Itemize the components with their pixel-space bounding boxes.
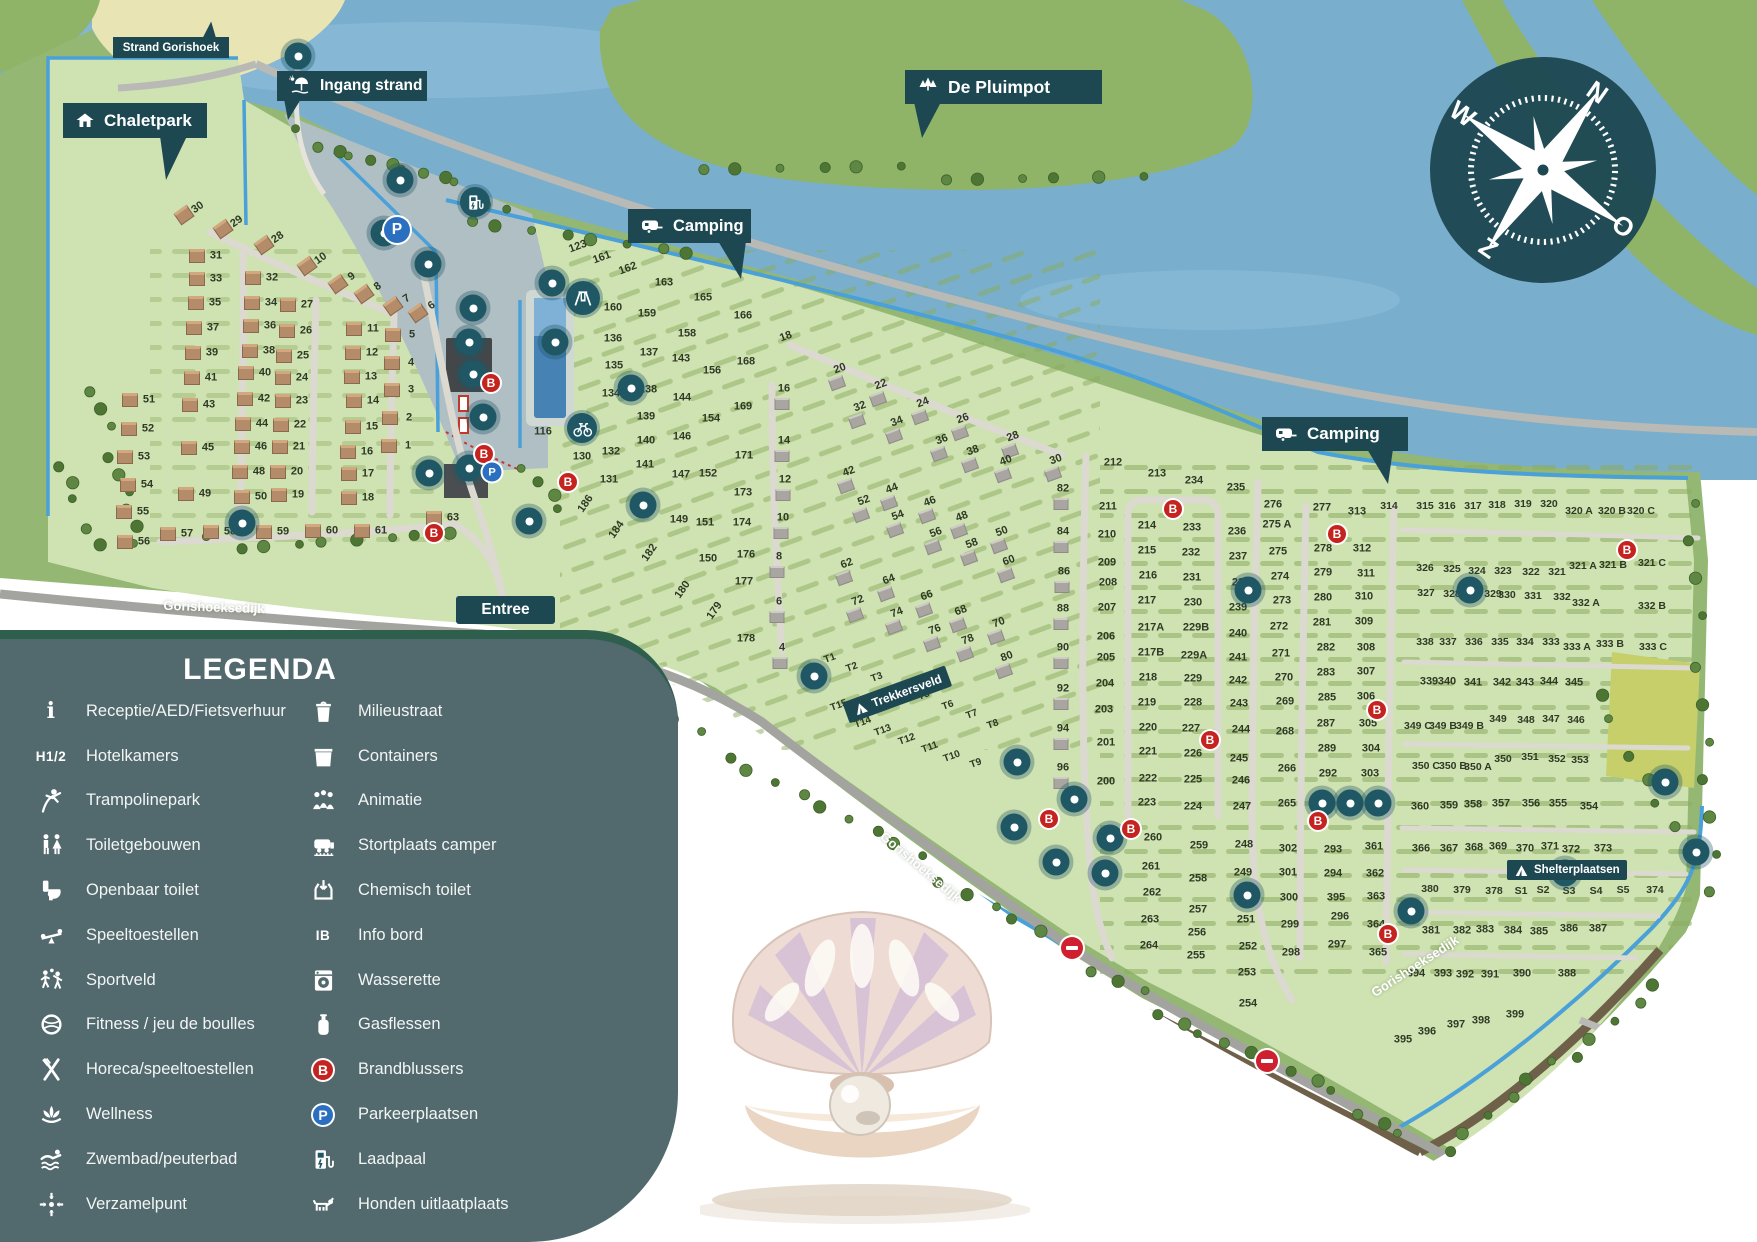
plot-number: 24 <box>296 373 308 384</box>
plot-number: 21 <box>293 442 305 453</box>
plot-number: 149 <box>670 515 688 526</box>
plot-number: 255 <box>1187 951 1205 962</box>
plot-number: 292 <box>1319 769 1337 780</box>
plot-number: 221 <box>1139 747 1157 758</box>
plot-number: 171 <box>735 451 753 462</box>
plot-number: 257 <box>1189 905 1207 916</box>
plot-number: 372 <box>1562 845 1580 856</box>
plot-number: 340 <box>1438 677 1456 688</box>
chalet-building <box>235 417 251 431</box>
plot-number: 156 <box>703 366 721 377</box>
plot-number: 217A <box>1138 623 1164 634</box>
plot-number: 383 <box>1476 925 1494 936</box>
plot-number: 298 <box>1282 948 1300 959</box>
chalet-building <box>203 525 219 539</box>
plot-number: 207 <box>1098 603 1116 614</box>
public-toilet-icon <box>28 877 74 904</box>
plot-number: 25 <box>297 351 309 362</box>
plot-number: 94 <box>1057 724 1069 735</box>
plot-number: 140 <box>637 436 655 447</box>
plot-number: 307 <box>1357 667 1375 678</box>
plot-number: 49 <box>199 489 211 500</box>
plot-number: 217 <box>1138 596 1156 607</box>
chalet-building <box>189 249 205 263</box>
plot-number: 23 <box>296 396 308 407</box>
plot-number: 236 <box>1228 527 1246 538</box>
plot-number: 163 <box>655 278 673 289</box>
plot-number: 139 <box>637 412 655 423</box>
chalet-building <box>181 441 197 455</box>
plot-number: 154 <box>702 414 720 425</box>
plot-number: 247 <box>1233 802 1251 813</box>
plot-number: 229B <box>1183 623 1209 634</box>
van-building <box>1054 738 1069 750</box>
plot-number: 176 <box>737 550 755 561</box>
plot-number: 177 <box>735 577 753 588</box>
fire-extinguisher-icon: B <box>559 473 577 491</box>
plot-number: 231 <box>1183 573 1201 584</box>
plot-number: 320 C <box>1627 506 1655 517</box>
plot-number: 319 <box>1514 499 1532 510</box>
chalet-building <box>382 411 398 425</box>
plot-number: 33 <box>210 274 222 285</box>
plot-number: 86 <box>1058 567 1070 578</box>
plot-number: 48 <box>253 467 265 478</box>
facility-marker <box>387 167 414 194</box>
plot-number: 212 <box>1104 458 1122 469</box>
plot-number: 232 <box>1182 548 1200 559</box>
chalet-building <box>345 420 361 434</box>
plot-number: 206 <box>1097 632 1115 643</box>
plot-number: 361 <box>1365 842 1383 853</box>
plot-number: 245 <box>1230 754 1248 765</box>
plot-number: 275 <box>1269 547 1287 558</box>
plot-number: 5 <box>409 330 415 341</box>
plot-number: 151 <box>696 518 714 529</box>
plot-number: 384 <box>1504 926 1522 937</box>
plot-number: 34 <box>265 298 277 309</box>
plot-number: 92 <box>1057 684 1069 695</box>
plot-number: 229A <box>1181 651 1207 662</box>
plot-number: 174 <box>733 518 751 529</box>
plot-number: 278 <box>1314 544 1332 555</box>
facility-marker <box>1235 577 1262 604</box>
badge-text: Camping <box>673 217 744 236</box>
legend-item: Horeca/speeltoestellen <box>28 1047 286 1092</box>
legend-label: Parkeerplaatsen <box>358 1105 478 1124</box>
plot-number: 318 <box>1488 500 1506 511</box>
plot-number: 350 <box>1494 754 1512 765</box>
plot-number: 3 <box>408 385 414 396</box>
legend-label: Info bord <box>358 926 423 945</box>
plot-number: 259 <box>1190 841 1208 852</box>
plot-number: 387 <box>1589 924 1607 935</box>
legend-item: Containers <box>300 734 508 779</box>
legend-item: H1/2Hotelkamers <box>28 734 286 779</box>
chalet-building <box>385 328 401 342</box>
legend-left-column: iReceptie/AED/FietsverhuurH1/2Hotelkamer… <box>28 689 286 1227</box>
chalet-building <box>346 322 362 336</box>
label-de-pluimpot: De Pluimpot <box>905 70 1102 104</box>
plot-number: 314 <box>1380 501 1398 512</box>
legend-label: Animatie <box>358 791 422 810</box>
badge-text: Ingang strand <box>320 77 422 95</box>
van-building <box>775 398 790 410</box>
plot-number: 381 <box>1422 926 1440 937</box>
plot-number: 390 <box>1513 969 1531 980</box>
plot-number: 368 <box>1465 843 1483 854</box>
facility-marker <box>801 663 828 690</box>
containers-icon <box>300 743 346 770</box>
facility-marker <box>1004 749 1031 776</box>
plot-number: 116 <box>534 427 552 438</box>
dog-icon <box>300 1191 346 1218</box>
plot-number: 269 <box>1276 697 1294 708</box>
plot-number: 160 <box>604 303 622 314</box>
chalet-building <box>184 371 200 385</box>
facility-marker <box>516 508 543 535</box>
plot-number: 333 C <box>1639 642 1667 653</box>
legend-label: Gasflessen <box>358 1015 441 1034</box>
plot-number: 19 <box>292 490 304 501</box>
plot-number: 279 <box>1314 568 1332 579</box>
pearl-illustration <box>700 880 1030 1242</box>
plot-number: 356 <box>1522 799 1540 810</box>
facility-marker <box>542 329 569 356</box>
plot-number: 348 <box>1517 715 1535 726</box>
plot-number: 374 <box>1646 885 1664 896</box>
plot-number: 335 <box>1491 637 1509 648</box>
plot-number: 18 <box>362 493 374 504</box>
plot-number: 55 <box>137 507 149 518</box>
plot-number: 13 <box>365 372 377 383</box>
chalet-building <box>242 344 258 358</box>
chalet-building <box>305 524 321 538</box>
plot-number: 22 <box>294 420 306 431</box>
plot-number: 235 <box>1227 483 1245 494</box>
plot-number: 226 <box>1184 749 1202 760</box>
plot-number: 210 <box>1098 530 1116 541</box>
legend-label: Sportveld <box>86 971 156 990</box>
chalet-building <box>346 394 362 408</box>
chalet-building <box>354 524 370 538</box>
plot-number: 395 <box>1327 893 1345 904</box>
badge-text: De Pluimpot <box>948 77 1050 98</box>
facility-marker <box>539 270 566 297</box>
plot-number: 399 <box>1506 1010 1524 1021</box>
chalet-building <box>121 422 137 436</box>
chalet-building <box>120 478 136 492</box>
plot-number: 321 C <box>1638 558 1666 569</box>
plot-number: 131 <box>600 475 618 486</box>
plot-number: 218 <box>1139 673 1157 684</box>
plot-number: 393 <box>1434 969 1452 980</box>
plot-number: 239 <box>1229 603 1247 614</box>
plot-number: 360 <box>1411 802 1429 813</box>
label-ingang-strand: Ingang strand <box>277 71 427 101</box>
trees-icon <box>916 76 940 98</box>
legend-item: Laadpaal <box>300 1137 508 1182</box>
plot-number: 32 <box>266 273 278 284</box>
plot-number: 43 <box>203 400 215 411</box>
campground-map: N O Z W 30292810987631333537394143323436… <box>0 0 1757 1242</box>
plot-number: 350 C <box>1412 761 1440 772</box>
plot-number: 370 <box>1516 844 1534 855</box>
plot-number: 321 A <box>1569 561 1597 572</box>
facility-marker <box>1061 786 1088 813</box>
van-building <box>1055 581 1070 593</box>
fire-extinguisher-icon: B <box>475 445 493 463</box>
facility-marker <box>1683 839 1710 866</box>
plot-number: 277 <box>1313 503 1331 514</box>
facility-marker <box>1652 769 1679 796</box>
plot-number: 214 <box>1138 521 1156 532</box>
plot-number: 90 <box>1057 643 1069 654</box>
chalet-building <box>340 445 356 459</box>
chalet-building <box>243 319 259 333</box>
legend-label: Zwembad/peuterbad <box>86 1150 237 1169</box>
fire-extinguisher-icon: B <box>1164 500 1182 518</box>
plot-number: 369 <box>1489 842 1507 853</box>
plot-number: 14 <box>367 396 379 407</box>
chalet-building <box>238 366 254 380</box>
chalet-building <box>160 527 176 541</box>
caravan-icon <box>639 215 665 237</box>
plot-number: 26 <box>300 326 312 337</box>
plot-number: 315 <box>1416 501 1434 512</box>
plot-number: 273 <box>1273 596 1291 607</box>
charging-icon <box>460 187 490 217</box>
chalet-building <box>384 383 400 397</box>
assembly-icon <box>28 1191 74 1218</box>
plot-number: 205 <box>1097 653 1115 664</box>
plot-number: 391 <box>1481 970 1499 981</box>
plot-number: 211 <box>1099 502 1117 513</box>
plot-number: 152 <box>699 469 717 480</box>
legend-label: Honden uitlaatplaats <box>358 1195 508 1214</box>
legend-label: Speeltoestellen <box>86 926 199 945</box>
infoboard-icon: IB <box>300 928 346 943</box>
plot-number: 353 <box>1571 755 1589 766</box>
label-entree: Entree <box>456 596 555 624</box>
plot-number: 225 <box>1184 775 1202 786</box>
legend-item: PParkeerplaatsen <box>300 1092 508 1137</box>
badge-text: Camping <box>1307 424 1380 444</box>
badge-text: Entree <box>481 601 529 619</box>
legend-right-column: MilieustraatContainersAnimatieStortplaat… <box>300 689 508 1227</box>
badge-text: Strand Gorishoek <box>123 42 220 54</box>
plot-number: 300 <box>1280 893 1298 904</box>
legend-item: Trampolinepark <box>28 779 286 824</box>
plot-number: 229 <box>1184 674 1202 685</box>
chalet-building <box>256 525 272 539</box>
chalet-building <box>280 298 296 312</box>
plot-number: 395 <box>1394 1035 1412 1046</box>
gas-icon <box>300 1011 346 1038</box>
legend-item: Verzamelpunt <box>28 1182 286 1227</box>
plot-number: 44 <box>256 419 268 430</box>
plot-number: 217B <box>1138 648 1164 659</box>
plot-number: 35 <box>209 298 221 309</box>
legend-label: Trampolinepark <box>86 791 200 810</box>
plot-number: 165 <box>694 293 712 304</box>
facility-marker <box>1365 790 1392 817</box>
legend-item: Fitness / jeu de boulles <box>28 1003 286 1048</box>
fitness-icon <box>28 1011 74 1038</box>
plot-number: 10 <box>777 513 789 524</box>
plot-number: 349 B <box>1456 721 1484 732</box>
plot-number: 296 <box>1331 912 1349 923</box>
waste-icon <box>300 698 346 725</box>
plot-number: 20 <box>291 467 303 478</box>
plot-number: 332 B <box>1638 601 1666 612</box>
fire-extinguisher-icon: B <box>1368 701 1386 719</box>
chalet-building <box>245 271 261 285</box>
plot-number: 37 <box>207 323 219 334</box>
plot-number: 330 <box>1498 590 1516 601</box>
plot-number: 38 <box>263 346 275 357</box>
plot-number: 262 <box>1143 888 1161 899</box>
plot-number: 4 <box>408 358 414 369</box>
plot-number: 36 <box>264 321 276 332</box>
plot-number: 272 <box>1270 622 1288 633</box>
plot-number: 16 <box>778 384 790 395</box>
plot-number: 46 <box>255 442 267 453</box>
plot-number: 398 <box>1472 1016 1490 1027</box>
plot-number: 346 <box>1567 715 1585 726</box>
chemical-toilet-icon <box>300 877 346 904</box>
plot-number: 334 <box>1516 637 1534 648</box>
charging-icon <box>300 1146 346 1173</box>
plot-number: 332 <box>1553 592 1571 603</box>
legend-label: Horeca/speeltoestellen <box>86 1060 254 1079</box>
plot-number: 216 <box>1139 571 1157 582</box>
plot-number: 311 <box>1357 569 1375 580</box>
plot-number: 204 <box>1096 679 1114 690</box>
chalet-building <box>276 349 292 363</box>
van-building <box>776 489 791 501</box>
plot-number: 14 <box>778 436 790 447</box>
plot-number: 294 <box>1324 869 1342 880</box>
plot-number: 392 <box>1456 970 1474 981</box>
plot-number: 274 <box>1271 572 1289 583</box>
plot-number: 8 <box>776 552 782 563</box>
legend-label: Verzamelpunt <box>86 1195 187 1214</box>
plot-number: 96 <box>1057 763 1069 774</box>
plot-number: 359 <box>1440 801 1458 812</box>
plot-number: 322 <box>1522 567 1540 578</box>
legend-panel: LEGENDA iReceptie/AED/FietsverhuurH1/2Ho… <box>0 630 678 1242</box>
plot-number: 276 <box>1264 500 1282 511</box>
fire-extinguisher-icon: B <box>1618 541 1636 559</box>
plot-number: 31 <box>210 251 222 262</box>
pool-icon <box>28 1146 74 1173</box>
chalet-building <box>116 505 132 519</box>
plot-number: 396 <box>1418 1027 1436 1038</box>
reception-icon: i <box>28 698 74 724</box>
plot-number: 333 B <box>1596 639 1624 650</box>
fire-extinguisher-icon: B <box>425 524 443 542</box>
chalet-building <box>244 296 260 310</box>
legend-item: Openbaar toilet <box>28 868 286 913</box>
plot-number: 263 <box>1141 915 1159 926</box>
facility-marker <box>1398 898 1425 925</box>
playground-icon <box>28 922 74 949</box>
plot-number: 173 <box>734 488 752 499</box>
plot-number: S5 <box>1617 885 1630 896</box>
plot-number: 59 <box>277 527 289 538</box>
plot-number: 241 <box>1229 653 1247 664</box>
plot-number: 243 <box>1230 699 1248 710</box>
plot-number: S1 <box>1515 886 1528 897</box>
chalet-building <box>186 321 202 335</box>
plot-number: 366 <box>1412 844 1430 855</box>
plot-number: 289 <box>1318 744 1336 755</box>
plot-number: 252 <box>1239 942 1257 953</box>
plot-number: 135 <box>605 361 623 372</box>
legend-label: Fitness / jeu de boulles <box>86 1015 255 1034</box>
plot-number: 317 <box>1464 501 1482 512</box>
legend-title: LEGENDA <box>0 653 520 687</box>
plot-number: 12 <box>366 348 378 359</box>
plot-number: 343 <box>1516 678 1534 689</box>
plot-number: 208 <box>1099 578 1117 589</box>
plot-number: 15 <box>366 422 378 433</box>
legend-item: Animatie <box>300 779 508 824</box>
plot-number: 351 <box>1521 752 1539 763</box>
plot-number: 136 <box>604 334 622 345</box>
label-shelterplaatsen: Shelterplaatsen <box>1507 860 1627 880</box>
plot-number: 365 <box>1369 948 1387 959</box>
plot-number: 248 <box>1235 840 1253 851</box>
legend-label: Chemisch toilet <box>358 881 471 900</box>
fire-extinguisher-icon: B <box>482 374 500 392</box>
plot-number: 338 <box>1416 637 1434 648</box>
plot-number: 4 <box>779 643 785 654</box>
plot-number: 347 <box>1542 714 1560 725</box>
plot-number: 237 <box>1229 552 1247 563</box>
plot-number: 137 <box>640 348 658 359</box>
plot-number: 304 <box>1362 744 1380 755</box>
plot-number: 352 <box>1548 754 1566 765</box>
plot-number: 256 <box>1188 928 1206 939</box>
sport-field <box>1606 652 1700 788</box>
legend-item: IBInfo bord <box>300 913 508 958</box>
plot-number: 287 <box>1317 719 1335 730</box>
plot-number: 51 <box>143 395 155 406</box>
plot-number: 301 <box>1279 868 1297 879</box>
chalet-building <box>273 418 289 432</box>
legend-label: Stortplaats camper <box>358 836 496 855</box>
plot-number: 6 <box>776 597 782 608</box>
plot-number: 303 <box>1361 769 1379 780</box>
plot-number: 244 <box>1232 725 1250 736</box>
no-entry-sign <box>1256 1050 1278 1072</box>
plot-number: 213 <box>1148 469 1166 480</box>
plot-number: 355 <box>1549 799 1567 810</box>
plot-number: 333 A <box>1563 642 1591 653</box>
chalet-building <box>341 467 357 481</box>
facility-marker <box>630 492 657 519</box>
plot-number: 344 <box>1540 677 1558 688</box>
plot-number: 166 <box>734 311 752 322</box>
plot-number: 336 <box>1465 637 1483 648</box>
legend-label: Toiletgebouwen <box>86 836 201 855</box>
plot-number: 215 <box>1138 546 1156 557</box>
plot-number: 324 <box>1468 566 1486 577</box>
plot-number: 16 <box>361 447 373 458</box>
van-building <box>1054 618 1069 630</box>
